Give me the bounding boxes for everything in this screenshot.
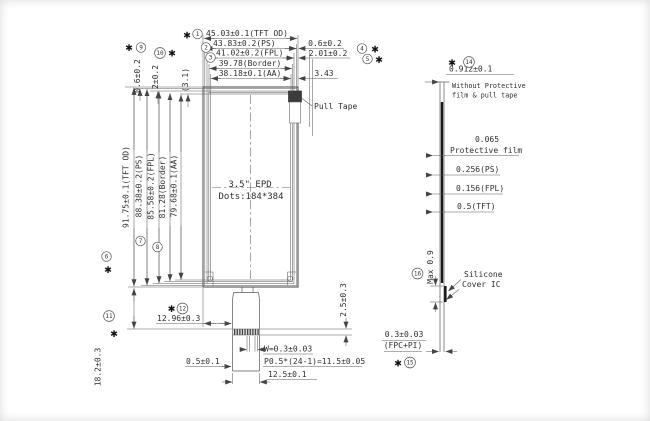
top-dim-border: 39.78(Border) — [219, 59, 282, 68]
bottom-dim-pin-pitch: P0.5*(24-1)=11.5±0.05 — [264, 357, 365, 366]
bottom-dim-fpc-width: 12.5±0.1 — [268, 370, 307, 379]
panel-dots-label: Dots:184*384 — [218, 192, 283, 202]
callout-7-number: 7 — [139, 238, 143, 245]
callout-5-number: 5 — [366, 56, 370, 63]
callout-15: 15 — [405, 357, 416, 368]
callout-2-number: 2 — [204, 45, 208, 52]
callout-6-number: 6 — [105, 254, 109, 261]
section-ps-thickness: 0.256(PS) — [456, 165, 499, 174]
callout-8: 8 — [153, 242, 163, 252]
section-ic-max-height: Max 0.9 — [426, 250, 435, 284]
callout-14-number: 14 — [465, 59, 473, 66]
callout-9-number: 9 — [139, 45, 143, 52]
callout-12-number: 12 — [179, 306, 187, 313]
asterisk-9: ✱ — [125, 40, 132, 54]
section-fpc-thickness: 0.3±0.03 — [385, 330, 424, 339]
callout-16: 16 — [412, 268, 423, 279]
callout-10: 10 — [155, 48, 166, 59]
callout-1-number: 1 — [196, 31, 200, 38]
top-dim-ps: 43.83±0.2(PS) — [213, 39, 276, 48]
section-cover-ic-label: Cover IC — [462, 280, 501, 289]
asterisk-14: ✱ — [448, 55, 455, 69]
callout-8-number: 8 — [156, 244, 160, 251]
section-view-lines — [382, 75, 519, 353]
bottom-dim-fpc-offset: 12.96±0.3 — [157, 314, 201, 323]
callout-3: 3 — [206, 53, 216, 63]
left-dim-fpl: 85.58±0.2(FPL) — [147, 152, 156, 219]
callout-5: 5 — [363, 54, 373, 64]
top-right-dim-aa-gap: 3.43 — [314, 69, 333, 78]
callout-12: 12 — [177, 303, 188, 314]
left-dim-aa: 79.68±0.1(AA) — [170, 155, 179, 218]
callout-6: 6 — [102, 252, 112, 262]
bottom-dimension-lines — [127, 288, 362, 384]
callout-15-number: 15 — [406, 360, 414, 367]
asterisk-5: ✱ — [375, 52, 382, 66]
bottom-dim-pin-width: W=0.3±0.03 — [264, 345, 312, 354]
asterisk-6: ✱ — [104, 262, 111, 276]
drawing-svg: 45.03±0.1(TFT OD) 43.83±0.2(PS) 41.02±0.… — [0, 0, 650, 421]
section-note-line1: Without Protective — [452, 82, 526, 90]
asterisk-11: ✱ — [110, 326, 117, 340]
panel-size-label: 3.5" EPD — [228, 180, 271, 190]
bottom-dim-edge-gap: 0.5±0.1 — [186, 357, 220, 366]
section-fpl-thickness: 0.156(FPL) — [456, 184, 504, 193]
top-dim-fpl: 41.02±0.2(FPL) — [216, 49, 283, 58]
bottom-dim-contact-length: 2.5±0.3 — [339, 283, 348, 317]
callout-4-number: 4 — [360, 46, 364, 53]
top-dim-od: 45.03±0.1(TFT OD) — [206, 29, 288, 38]
left-top-dim-ps: 0.6±0.2 — [133, 59, 142, 93]
callout-9: 9 — [136, 43, 146, 53]
section-film-label: Protective film — [450, 146, 522, 155]
epd-technical-drawing-page: 45.03±0.1(TFT OD) 43.83±0.2(PS) 41.02±0.… — [0, 0, 650, 421]
pull-tape-shape — [289, 91, 313, 123]
top-dim-aa: 38.18±0.1(AA) — [219, 69, 282, 78]
left-dim-border: 81.28(Border) — [158, 156, 167, 219]
bottom-dim-tail-length: 18.2±0.3 — [94, 348, 103, 387]
callout-4: 4 — [357, 44, 367, 54]
section-fpc-material: (FPC+PI) — [384, 341, 423, 350]
left-top-dim-aa: (3.1) — [181, 68, 190, 92]
callout-10-number: 10 — [156, 50, 164, 57]
top-right-dim-fpl-gap: 2.01±0.2 — [309, 49, 348, 58]
pull-tape-label: Pull Tape — [314, 102, 358, 111]
left-dim-ps: 88.38±0.2(PS) — [135, 155, 144, 218]
section-film-value: 0.065 — [475, 135, 499, 144]
asterisk-1: ✱ — [183, 28, 190, 42]
section-tft-thickness: 0.5(TFT) — [457, 202, 496, 211]
callout-16-number: 16 — [414, 271, 422, 278]
callout-3-number: 3 — [209, 55, 213, 62]
top-right-dim-ps-gap: 0.6±0.2 — [308, 39, 342, 48]
fpc-connector-shape — [233, 288, 260, 372]
callout-7: 7 — [136, 236, 146, 246]
left-top-dim-fpl: 2±0.2 — [151, 65, 160, 89]
callout-11-number: 11 — [105, 313, 113, 320]
callout-1: 1 — [193, 29, 203, 39]
callout-2: 2 — [201, 43, 211, 53]
left-dim-od: 91.75±0.1(TFT OD) — [122, 146, 131, 228]
callout-11: 11 — [104, 311, 115, 322]
asterisk-12: ✱ — [168, 301, 175, 315]
section-note-line2: film & pull tape — [452, 92, 517, 100]
asterisk-10: ✱ — [168, 46, 175, 60]
callout-14: 14 — [464, 57, 475, 68]
section-silicone-label: Silicone — [464, 270, 503, 279]
asterisk-15: ✱ — [394, 356, 401, 370]
